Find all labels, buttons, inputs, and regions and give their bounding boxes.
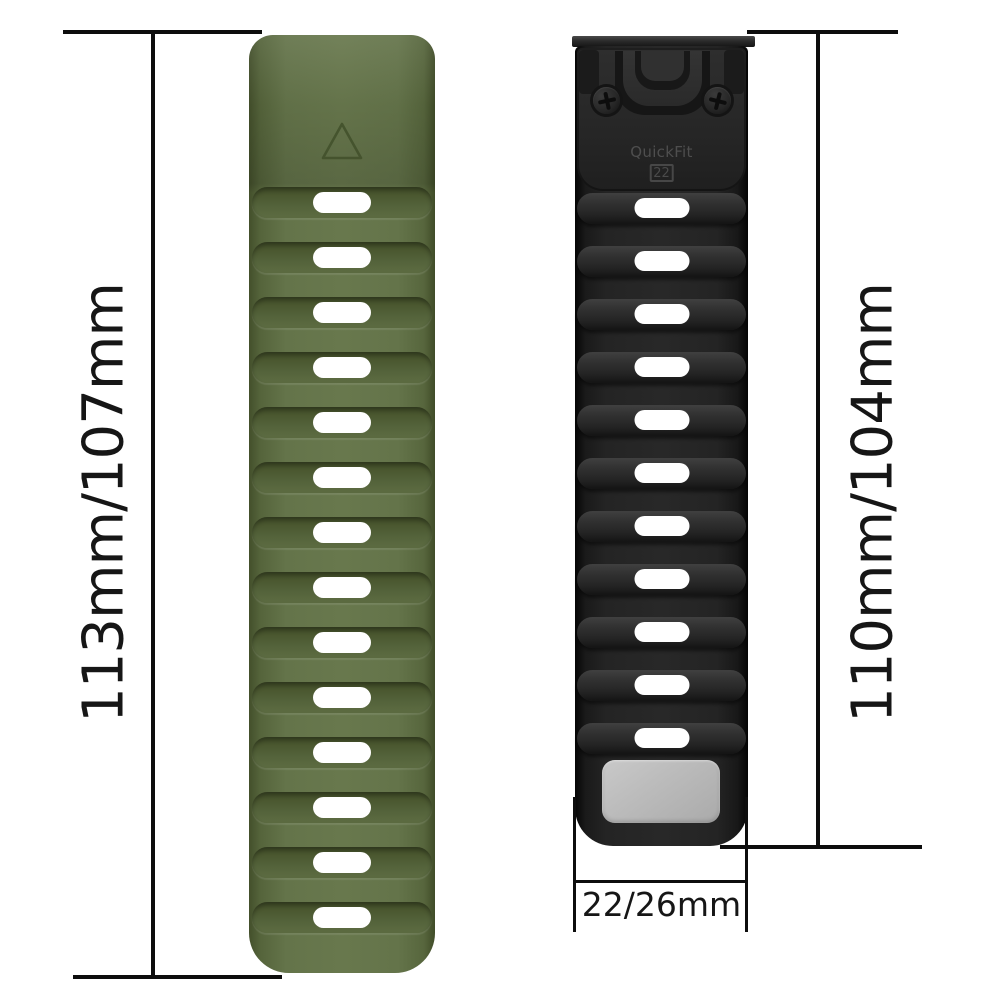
strap-groove (252, 187, 432, 218)
strap-groove (577, 405, 746, 436)
strap-slot-hole (313, 742, 371, 763)
strap-groove (252, 462, 432, 493)
black-strap: QuickFit 22 (575, 46, 748, 846)
strap-slot-hole (634, 410, 689, 430)
strap-groove (577, 299, 746, 330)
strap-slot-hole (313, 192, 371, 213)
strap-groove (577, 246, 746, 277)
strap-slot-hole (313, 412, 371, 433)
strap-groove (252, 297, 432, 328)
strap-slot-hole (634, 622, 689, 642)
strap-slot-hole (313, 357, 371, 378)
strap-groove (252, 352, 432, 383)
strap-groove (252, 682, 432, 713)
right-length-label: 110mm/104mm (841, 283, 906, 723)
strap-groove (252, 517, 432, 548)
strap-groove (577, 670, 746, 701)
strap-groove (252, 902, 432, 933)
strap-groove (577, 511, 746, 542)
strap-slot-hole (634, 251, 689, 271)
strap-slot-hole (313, 522, 371, 543)
strap-slot-hole (634, 516, 689, 536)
strap-slot-hole (313, 247, 371, 268)
strap-groove (252, 627, 432, 658)
black-strap-ridges (575, 46, 748, 846)
strap-groove (577, 352, 746, 383)
strap-slot-hole (313, 302, 371, 323)
strap-groove (252, 572, 432, 603)
strap-slot-hole (313, 467, 371, 488)
width-label: 22/26mm (575, 885, 748, 924)
strap-slot-hole (313, 907, 371, 928)
strap-slot-hole (634, 198, 689, 218)
strap-slot-hole (634, 675, 689, 695)
green-strap (249, 35, 435, 973)
right-length-dimension-cap-top (747, 30, 898, 34)
left-length-dimension-cap-top (63, 30, 262, 34)
left-length-dimension-cap-bottom (73, 975, 282, 979)
strap-slot-hole (313, 852, 371, 873)
strap-groove (577, 723, 746, 754)
left-length-label: 113mm/107mm (72, 283, 137, 723)
watch-strap-size-diagram: QuickFit 22 113mm/107mm 110mm/104mm 22/2… (0, 0, 1000, 1000)
strap-slot-hole (634, 728, 689, 748)
left-length-dimension-line (151, 32, 155, 979)
metal-keeper-patch (602, 760, 720, 823)
strap-groove (252, 792, 432, 823)
strap-groove (252, 242, 432, 273)
strap-slot-hole (313, 577, 371, 598)
strap-slot-hole (313, 632, 371, 653)
strap-groove (577, 458, 746, 489)
right-length-dimension-cap-bottom (720, 845, 922, 849)
strap-groove (252, 407, 432, 438)
strap-slot-hole (634, 569, 689, 589)
strap-slot-hole (313, 797, 371, 818)
green-strap-grooves (249, 35, 435, 973)
strap-slot-hole (634, 357, 689, 377)
strap-slot-hole (313, 687, 371, 708)
strap-slot-hole (634, 304, 689, 324)
width-dimension-line (573, 880, 748, 883)
strap-slot-hole (634, 463, 689, 483)
right-length-dimension-line (816, 32, 820, 849)
strap-groove (577, 617, 746, 648)
strap-groove (577, 193, 746, 224)
strap-groove (252, 737, 432, 768)
strap-groove (252, 847, 432, 878)
strap-groove (577, 564, 746, 595)
